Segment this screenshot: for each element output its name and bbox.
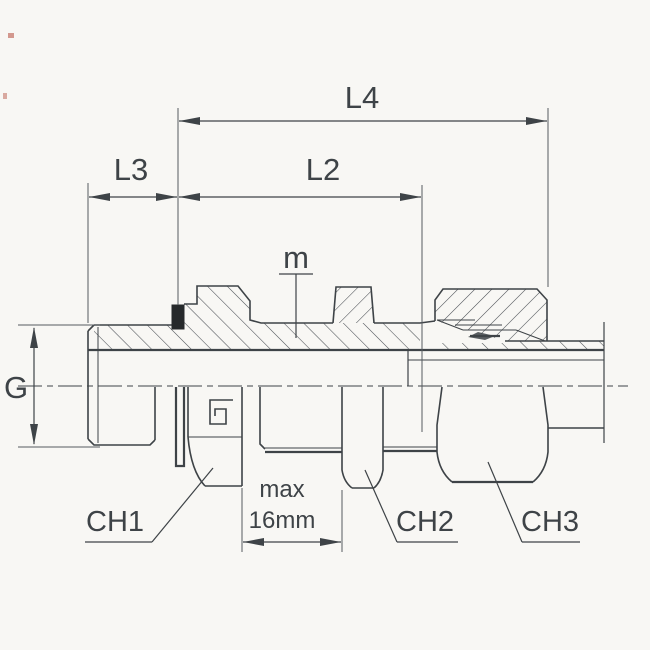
label-g: G [4, 370, 28, 405]
label-l2: L2 [306, 152, 340, 187]
label-ch2: CH2 [396, 506, 454, 538]
label-m: m [283, 240, 309, 275]
label-max: max [259, 476, 304, 503]
label-ch3: CH3 [521, 506, 579, 538]
fitting-section-drawing: L4 L3 L2 G m max 16mm CH1 [0, 0, 650, 650]
label-16mm: 16mm [249, 507, 316, 534]
label-l4: L4 [345, 80, 379, 115]
label-ch1: CH1 [86, 506, 144, 538]
technical-drawing-page: L4 L3 L2 G m max 16mm CH1 [0, 0, 650, 650]
label-l3: L3 [114, 152, 148, 187]
scan-artifact [3, 93, 7, 99]
seal-ring [172, 305, 184, 329]
scan-artifact [8, 33, 14, 38]
